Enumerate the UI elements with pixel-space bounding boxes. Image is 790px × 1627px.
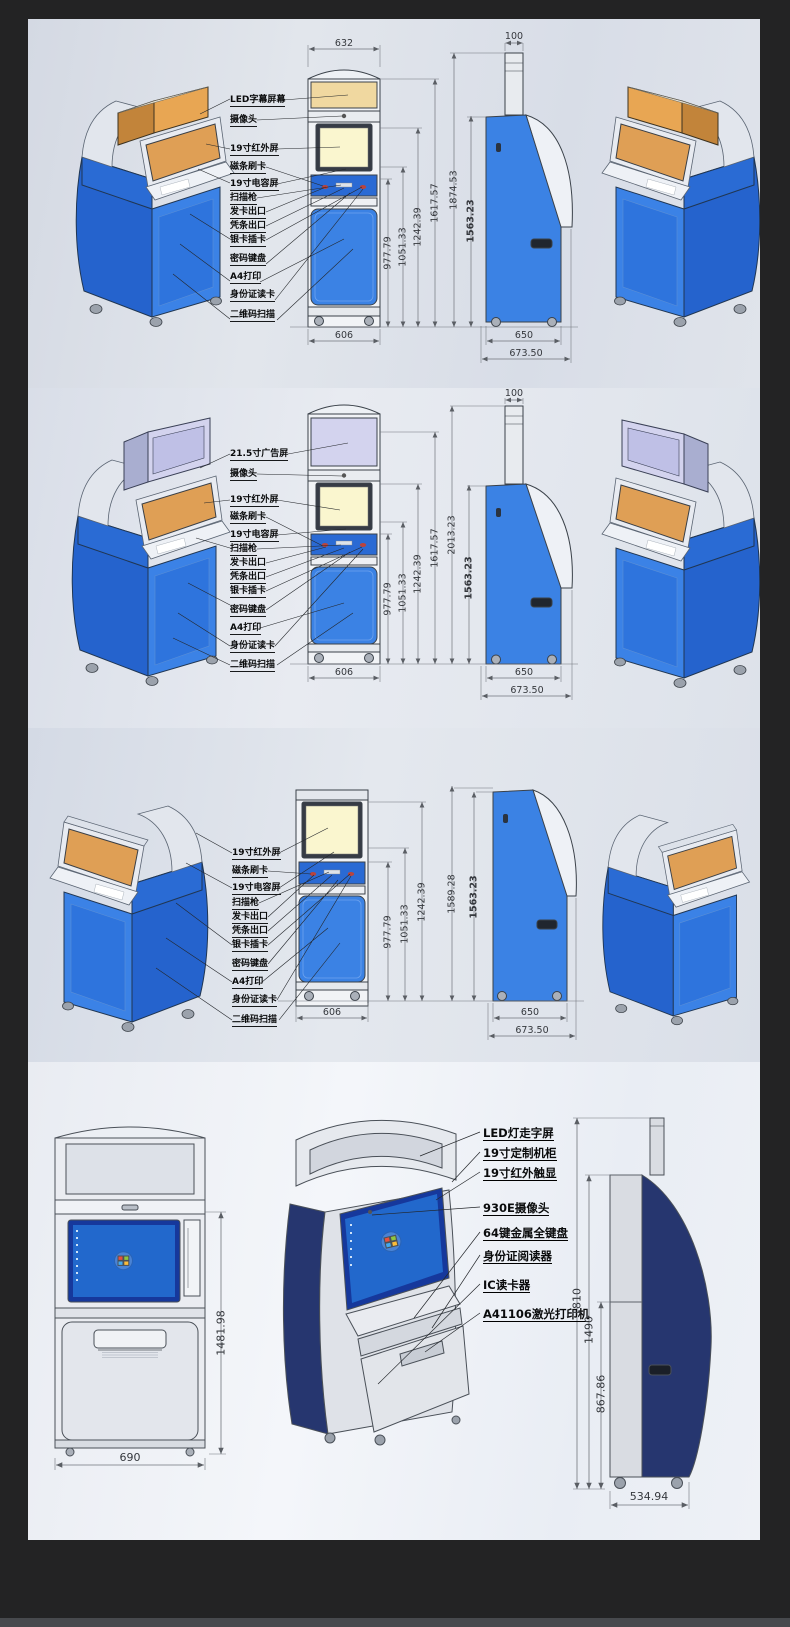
label-magstripe: 磁条刷卡 <box>230 512 266 524</box>
label-ir-screen: 19寸红外屏 <box>230 144 279 156</box>
iso-view-left <box>50 806 208 1032</box>
label-magstripe: 磁条刷卡 <box>230 162 266 174</box>
label-card-outlet: 发卡出口 <box>230 207 266 219</box>
drawing-stage: LED字幕屏幕 摄像头 19寸红外屏 磁条刷卡 19寸电容屏 扫描枪 发卡出口 … <box>28 19 760 1540</box>
side-view <box>486 53 572 327</box>
dim-side-total-height: 1589.28 <box>447 874 458 913</box>
label-pin-pad: 密码键盘 <box>230 254 266 266</box>
label-capacitive-screen: 19寸电容屏 <box>232 883 281 895</box>
iso-view-right <box>602 87 760 327</box>
label-camera: 摄像头 <box>230 469 257 481</box>
label-pin-pad: 密码键盘 <box>232 959 268 971</box>
panel-3-drawing <box>28 728 760 1062</box>
dim-front-h2: 1051.33 <box>400 904 411 943</box>
front-view <box>55 1127 205 1456</box>
dim-side-lower-height: 867.86 <box>596 1375 607 1414</box>
label-receipt-outlet: 凭条出口 <box>232 926 268 938</box>
front-view <box>308 70 380 327</box>
label-pin-pad: 密码键盘 <box>230 605 266 617</box>
side-view <box>486 406 572 664</box>
label-card-insert: 银卡插卡 <box>230 586 266 598</box>
dim-front-h2: 1051.33 <box>398 573 409 612</box>
label-capacitive-screen: 19寸电容屏 <box>230 530 279 542</box>
label-scanner: 扫描枪 <box>232 898 259 910</box>
dim-side-total-height: 2013.23 <box>447 515 458 554</box>
dim-side-body-height: 1563.23 <box>466 199 477 242</box>
label-930e-camera: 930E摄像头 <box>483 1201 549 1216</box>
dim-side-bottom-width: 650 <box>515 667 533 678</box>
dim-side-bottom-outer-width: 673.50 <box>509 348 542 359</box>
label-camera: 摄像头 <box>230 115 257 127</box>
dim-side-upper-height: 1490 <box>584 1316 595 1344</box>
label-receipt-outlet: 凭条出口 <box>230 572 266 584</box>
label-id-reader: 身份证读卡 <box>230 290 275 302</box>
dim-front-bottom-width: 606 <box>335 330 353 341</box>
panel-4-drawing <box>28 1062 760 1540</box>
label-card-insert: 银卡插卡 <box>230 235 266 247</box>
dim-front-h1: 977.79 <box>383 915 394 948</box>
label-qr-scanner: 二维码扫描 <box>230 310 275 322</box>
panel-1-led-marquee-kiosk: LED字幕屏幕 摄像头 19寸红外屏 磁条刷卡 19寸电容屏 扫描枪 发卡出口 … <box>28 19 760 388</box>
dim-side-bottom-outer-width: 673.50 <box>515 1025 548 1036</box>
dim-front-bottom-width: 606 <box>323 1007 341 1018</box>
label-ir-screen: 19寸红外屏 <box>232 848 281 860</box>
panel-2-drawing <box>28 388 760 728</box>
panel-3-headless-kiosk: 19寸红外屏 磁条刷卡 19寸电容屏 扫描枪 发卡出口 凭条出口 银卡插卡 密码… <box>28 728 760 1062</box>
dim-front-bottom-width: 606 <box>335 667 353 678</box>
label-capacitive-screen: 19寸电容屏 <box>230 179 279 191</box>
iso-view-right <box>603 815 750 1025</box>
label-qr-scanner: 二维码扫描 <box>232 1015 277 1027</box>
bottom-bar <box>0 1618 790 1627</box>
label-ir-screen: 19寸红外屏 <box>230 495 279 507</box>
label-a4-print: A4打印 <box>232 977 263 989</box>
dim-side-bottom-width: 650 <box>521 1007 539 1018</box>
dim-pole-width: 100 <box>505 388 523 399</box>
label-magstripe: 磁条刷卡 <box>232 866 268 878</box>
label-id-reader: 身份证读卡 <box>230 641 275 653</box>
side-view <box>493 790 576 1001</box>
label-metal-keyboard: 64键金属全键盘 <box>483 1226 568 1241</box>
label-scanner: 扫描枪 <box>230 544 257 556</box>
label-card-insert: 银卡插卡 <box>232 940 268 952</box>
dim-front-h1: 977.79 <box>383 582 394 615</box>
label-led-ticker-screen: LED灯走字屏 <box>483 1126 554 1141</box>
label-card-outlet: 发卡出口 <box>230 558 266 570</box>
label-id-card-reader: 身份证阅读器 <box>483 1249 552 1264</box>
dim-front-h3: 1242.39 <box>417 882 428 921</box>
label-a4-print: A4打印 <box>230 272 261 284</box>
dim-side-bottom-width: 534.94 <box>630 1491 669 1502</box>
dim-side-body-height: 1563.23 <box>464 556 475 599</box>
dim-front-h2: 1051.33 <box>398 227 409 266</box>
dim-front-h4: 1617.57 <box>430 183 441 222</box>
dim-front-height: 1481.98 <box>216 1310 227 1356</box>
panel-4-custom-cabinet-kiosk: LED灯走字屏 19寸定制机柜 19寸红外触显 930E摄像头 64键金属全键盘… <box>28 1062 760 1540</box>
label-ad-screen: 21.5寸广告屏 <box>230 449 288 461</box>
label-card-outlet: 发卡出口 <box>232 912 268 924</box>
dim-front-bottom-width: 690 <box>120 1452 141 1463</box>
label-a4-print: A4打印 <box>230 623 261 635</box>
label-scanner: 扫描枪 <box>230 193 257 205</box>
dim-front-h1: 977.79 <box>383 236 394 269</box>
dim-side-bottom-width: 650 <box>515 330 533 341</box>
label-led-marquee: LED字幕屏幕 <box>230 95 285 107</box>
label-ir-touch-display: 19寸红外触显 <box>483 1166 557 1181</box>
label-ic-card-reader: IC读卡器 <box>483 1278 530 1293</box>
dim-pole-width: 100 <box>505 31 523 42</box>
front-view <box>296 790 368 1006</box>
dim-side-total-height: 1810 <box>572 1288 583 1316</box>
side-view <box>610 1118 711 1489</box>
dim-side-bottom-outer-width: 673.50 <box>510 685 543 696</box>
label-custom-cabinet: 19寸定制机柜 <box>483 1146 557 1161</box>
panel-1-drawing <box>28 19 760 388</box>
label-qr-scanner: 二维码扫描 <box>230 660 275 672</box>
dim-front-h4: 1617.57 <box>430 528 441 567</box>
dim-side-total-height: 1874.53 <box>449 170 460 209</box>
label-id-reader: 身份证读卡 <box>232 995 277 1007</box>
drawing-sheet-page: LED字幕屏幕 摄像头 19寸红外屏 磁条刷卡 19寸电容屏 扫描枪 发卡出口 … <box>0 0 790 1627</box>
dim-front-h3: 1242.39 <box>413 554 424 593</box>
dim-front-top-width: 632 <box>335 38 353 49</box>
dim-front-h3: 1242.39 <box>413 207 424 246</box>
iso-view-right <box>602 420 760 688</box>
iso-view-left <box>72 418 230 686</box>
label-receipt-outlet: 凭条出口 <box>230 221 266 233</box>
dim-side-body-height: 1563.23 <box>469 875 480 918</box>
panel-2-ad-screen-kiosk: 21.5寸广告屏 摄像头 19寸红外屏 磁条刷卡 19寸电容屏 扫描枪 发卡出口… <box>28 388 760 728</box>
iso-view-left <box>76 87 234 327</box>
